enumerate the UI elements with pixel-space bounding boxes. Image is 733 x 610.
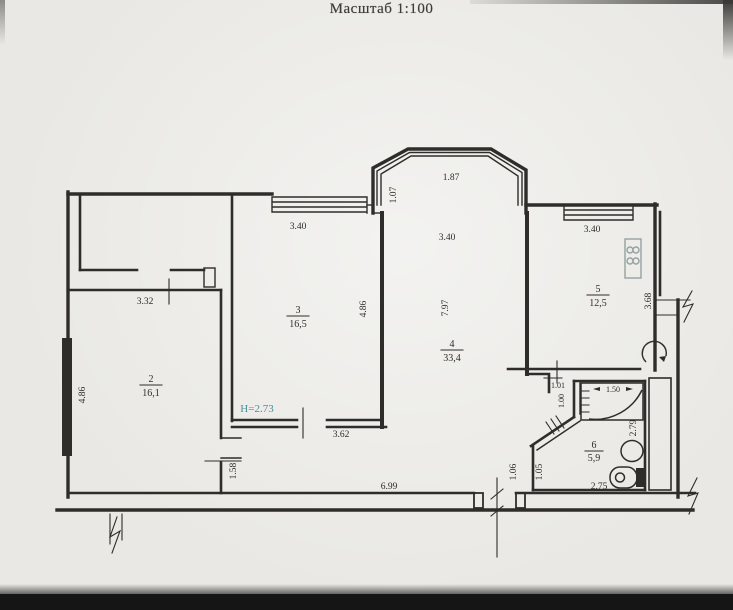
dim-room5-side: 3.68: [644, 292, 654, 309]
toilet-icon: [610, 467, 645, 488]
stove-icon: [625, 239, 641, 278]
sink-icon: [621, 441, 646, 462]
dim-room3-side: 4.86: [359, 300, 369, 317]
room4-number: 4: [450, 339, 455, 350]
inner-walls: [68, 196, 671, 493]
dim-entry-left: 1.06: [509, 463, 519, 480]
windows: [62, 197, 633, 456]
dim-bath-side: 2.79: [629, 419, 639, 436]
dim-bath-width: 2.75: [591, 482, 608, 492]
dim-room2-side: 4.86: [78, 386, 88, 403]
room3-number: 3: [296, 305, 301, 316]
height-note: Н=2.73: [240, 403, 274, 415]
dim-bay-side: 1.07: [389, 186, 399, 203]
wall-break-symbols: [110, 291, 698, 553]
dim-bay-width: 1.87: [443, 173, 460, 183]
door-marks: [169, 279, 666, 557]
dim-room2-door: 1.58: [229, 462, 239, 479]
entrance-jamb-right: [516, 493, 525, 508]
floor-plan-drawing: 2 16,1 3 16,5 4 33,4 5 12,5 6 5,9 Н=2.73…: [0, 0, 733, 610]
dim-corridor-top: 3.62: [333, 430, 350, 440]
dim-wc-niche: 1.00: [557, 394, 566, 408]
room5-number: 5: [596, 284, 601, 295]
room5-area: 12,5: [589, 298, 607, 309]
room6-number: 6: [592, 440, 597, 451]
break-right-icon: [656, 300, 690, 315]
scanned-floor-plan-page: Масштаб 1:100: [0, 0, 733, 610]
room2-window: [62, 338, 72, 456]
dim-entry-right: 1.05: [535, 463, 545, 480]
dim-corridor-len: 6.99: [381, 482, 398, 492]
room2-area: 16,1: [142, 388, 160, 399]
dim-tub-len: 1.50: [606, 385, 620, 394]
dim-wc-door: 1.01: [551, 381, 565, 390]
room2-number: 2: [149, 374, 154, 385]
dim-room3-window: 3.40: [290, 222, 307, 232]
dim-hall-width: 3.32: [137, 297, 154, 307]
room3-area: 16,5: [289, 319, 307, 330]
room4-area: 33,4: [443, 353, 461, 364]
entrance-jamb-left: [474, 493, 483, 508]
dim-room4-depth: 7.97: [441, 299, 451, 316]
dimension-labels: 1.87 1.07 3.40 3.40 3.40 3.32 4.86 4.86 …: [78, 173, 654, 492]
dim-room5-window: 3.40: [584, 225, 601, 235]
room6-area: 5,9: [588, 453, 601, 464]
dim-room4-width: 3.40: [439, 233, 456, 243]
